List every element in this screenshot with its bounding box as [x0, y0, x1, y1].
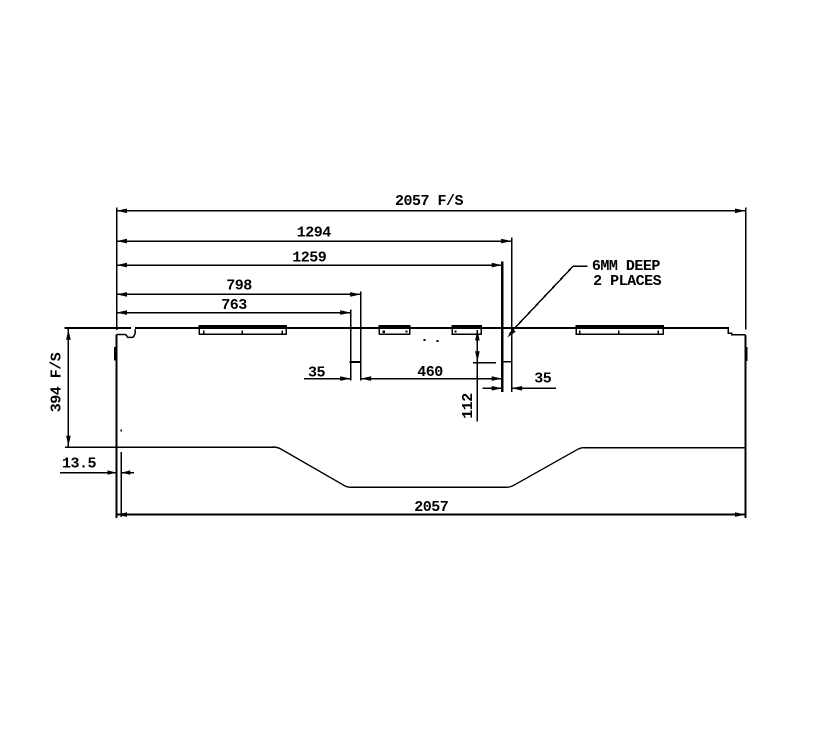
- svg-text:1294: 1294: [297, 225, 332, 242]
- svg-text:35: 35: [534, 371, 552, 388]
- svg-text:460: 460: [417, 364, 443, 381]
- svg-text:763: 763: [221, 297, 247, 314]
- svg-text:13.5: 13.5: [62, 456, 97, 473]
- svg-text:35: 35: [308, 365, 326, 382]
- svg-text:2057: 2057: [414, 499, 448, 516]
- svg-text:2 PLACES: 2 PLACES: [593, 273, 662, 290]
- svg-text:1259: 1259: [292, 249, 327, 266]
- svg-text:394 F/S: 394 F/S: [49, 352, 66, 412]
- svg-text:2057 F/S: 2057 F/S: [395, 193, 464, 210]
- svg-text:798: 798: [226, 278, 252, 295]
- svg-text:112: 112: [460, 393, 477, 419]
